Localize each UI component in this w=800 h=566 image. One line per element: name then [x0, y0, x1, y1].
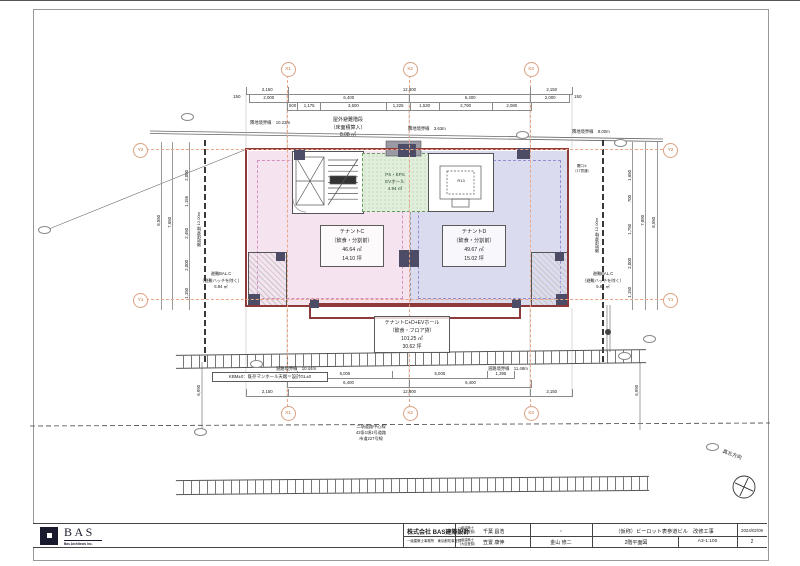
north-compass-icon	[733, 476, 755, 498]
dim-label: 8,550	[651, 217, 656, 228]
boundary-label-top-mid: 隣地境界線 3.63m	[408, 126, 446, 131]
dim-label: 2,150	[530, 87, 572, 94]
balcony-note-left: 避難BAL.C （避難ハッチを除く） 5.84 ㎡	[196, 271, 246, 291]
grid-line-x3	[530, 75, 531, 412]
sheet-number: 2	[737, 539, 767, 545]
grid-bubble-x3-top: X3	[524, 62, 539, 77]
grid-bubble-y1-left: Y1	[133, 293, 148, 308]
dim-line-left	[172, 142, 173, 310]
dim-label: 700	[627, 195, 632, 202]
road-centerline-l3: 市道227号線	[333, 436, 409, 442]
dim-label: 8,550	[156, 215, 161, 226]
architect-name-2: 笠置 康伸	[483, 539, 504, 546]
survey-marker	[618, 352, 631, 360]
dim-label: 500	[287, 103, 297, 110]
combined-use: （飲食・フロア貸）	[375, 327, 449, 335]
combined-tenant-label-box: テナントC+D+EVホール （飲食・フロア貸） 101.25 ㎡ 30.62 坪	[374, 316, 450, 353]
dim-label: 1,225	[386, 103, 410, 110]
tenant-c-name: テナントC	[321, 228, 383, 237]
boundary-label-top-right: 隣地境界線 8.00m	[572, 129, 610, 134]
grid-line-x1	[287, 75, 288, 412]
outdoor-stair-l3: 8.08 ㎡	[312, 132, 384, 140]
survey-marker	[38, 226, 51, 234]
dim-label: 1,395	[487, 371, 514, 378]
elevator-label: R13	[452, 178, 470, 183]
dim-row-bottom-1: 5,005 5,005 1,395	[297, 371, 515, 379]
tenant-d-area: 49.67 ㎡	[443, 246, 505, 255]
grid-bubble-x2-top: X2	[403, 62, 418, 77]
dim-line-right	[657, 142, 658, 310]
dim-label: 1,175	[297, 103, 320, 110]
dim-label: 2,000	[184, 170, 189, 181]
tenant-c-tsubo: 14.10 坪	[321, 255, 383, 264]
dim-line-right	[632, 142, 633, 310]
column	[398, 144, 416, 157]
column	[276, 252, 285, 261]
boundary-label-road-left: 道路境界線 10.44m	[276, 366, 316, 371]
laundry-pole-tag	[643, 335, 656, 343]
grid-bubble-x2-bottom: X2	[403, 406, 418, 421]
dim-label: 1,150	[184, 288, 189, 299]
drawing-sheet: X1 X2 X3 X1 X2 X3 Y2 Y1 Y2 Y1 2,150 12,8…	[0, 0, 800, 566]
dim-label: 2,150	[246, 87, 288, 94]
drawing-date: 2024/02/09	[737, 528, 767, 533]
dim-label: 2,000	[184, 260, 189, 271]
dim-label-150-left: 150	[233, 94, 241, 100]
dim-label: 1,750	[627, 224, 632, 235]
dim-label: 2,450	[184, 228, 189, 239]
project-name: （仮称）ビーロット表参道ビル 改修工事	[594, 528, 735, 535]
boundary-label-top-left: 隣地境界線 10.23m	[250, 120, 290, 125]
survey-marker	[614, 139, 627, 147]
dim-label: 2,150	[530, 389, 572, 396]
drawing-scale: A3-1:100	[678, 539, 737, 544]
opening-note: 開口① （1T貫通）	[568, 164, 596, 174]
dim-label: 2,000	[249, 95, 288, 102]
dim-label-150-right: 150	[574, 94, 582, 100]
grid-bubble-y1-right: Y1	[663, 293, 678, 308]
survey-marker	[516, 131, 529, 139]
tenant-d-use: （飲食・分割前）	[443, 237, 505, 246]
survey-marker	[250, 360, 263, 368]
survey-marker	[181, 113, 194, 121]
drawing-title: 2階平面図	[594, 539, 678, 546]
checked-by: 金山 修二	[530, 539, 592, 546]
dim-label: 6,400	[409, 380, 531, 387]
opening-l2: （1T貫通）	[568, 169, 596, 174]
dim-label: 12,800	[288, 87, 531, 94]
grid-bubble-x1-top: X1	[281, 62, 296, 77]
grid-bubble-y2-right: Y2	[663, 143, 678, 158]
dim-label: 6,990	[196, 385, 201, 396]
outdoor-stair-l2: （床面積算入）	[312, 125, 384, 133]
firm-registration: 一級建築士事務所 東京都知事登録	[407, 538, 461, 543]
dim-label: 2,000	[530, 95, 569, 102]
tenant-d-name: テナントD	[443, 228, 505, 237]
tenant-d-label-box: テナントD （飲食・分割前） 49.67 ㎡ 15.02 坪	[442, 225, 506, 267]
dim-line-left	[161, 142, 162, 310]
dim-row-top-3: 500 1,175 3,500 1,225 1,530 2,790 2,080	[287, 103, 532, 111]
dim-label: 1,155	[184, 196, 189, 207]
ps-hall-l1: PS・EPS	[365, 171, 425, 178]
dim-label: 7,650	[167, 217, 172, 228]
ps-hall-l3: 4.94 ㎡	[365, 185, 425, 192]
dim-label: 12,800	[288, 389, 531, 396]
dim-label: 6,400	[409, 95, 530, 102]
combined-tsubo: 30.62 坪	[375, 343, 449, 351]
column	[294, 149, 305, 160]
tenant-c-area: 46.64 ㎡	[321, 246, 383, 255]
dim-row-top-1: 2,150 12,800 2,150	[246, 87, 573, 95]
dim-row-bottom-3: 2,150 12,800 2,150	[246, 389, 573, 397]
bas-logo-text: BAS	[64, 525, 95, 540]
dim-label: 1,650	[627, 170, 632, 181]
dim-label: 2,150	[246, 389, 288, 396]
dim-label: 3,500	[320, 103, 386, 110]
dim-line-left	[189, 142, 190, 310]
grid-line-y1	[146, 299, 663, 300]
tenant-c-use: （飲食・分割前）	[321, 237, 383, 246]
road-centerline-note: 二項道路中心線 42条1項1号道路 市道227号線	[333, 424, 409, 442]
boundary-label-side-left: 隣地境界線 12.00m	[196, 212, 202, 246]
grid-bubble-x3-bottom: X3	[524, 406, 539, 421]
dim-label: 6,400	[288, 95, 409, 102]
outdoor-stair-l1: 屋外避難階段	[312, 117, 384, 125]
dim-label: 2,080	[492, 103, 532, 110]
architect-role-1: 一級建築士 （大臣登録）	[458, 526, 477, 534]
boundary-label-road-right: 道路境界線 11.48m	[488, 366, 528, 371]
tenant-d-tsubo: 15.02 坪	[443, 255, 505, 264]
column	[555, 252, 564, 261]
dim-label: 7,890	[640, 215, 645, 226]
column	[512, 299, 521, 308]
combined-name: テナントC+D+EVホール	[375, 319, 449, 327]
middle-cell-dot: ・	[530, 528, 592, 535]
role-registration: （大臣登録）	[458, 542, 477, 546]
dim-label: 6,990	[634, 385, 639, 396]
dim-label: 5,005	[392, 371, 487, 378]
balcony-note-right: 避難BAL.C （避難ハッチを除く） 5.84 ㎡	[578, 271, 628, 291]
title-block: BAS Bas Architects Inc. 株式会社 BAS建築設計 一級建…	[33, 523, 767, 548]
balcony-left-l3: 5.84 ㎡	[196, 284, 246, 291]
dim-line-right	[645, 142, 646, 310]
grid-bubble-x1-bottom: X1	[281, 406, 296, 421]
dim-label: 2,790	[439, 103, 492, 110]
architect-role-2: 一級建築士 （大臣登録）	[458, 538, 477, 546]
combined-area: 101.25 ㎡	[375, 335, 449, 343]
grid-line-y2	[146, 149, 663, 150]
bas-logo-inner	[47, 533, 52, 538]
architect-name-1: 千葉 昌浩	[483, 528, 504, 535]
ps-hall-label: PS・EPS EVホール 4.94 ㎡	[365, 171, 425, 192]
bas-logo-sub: Bas Architects Inc.	[64, 542, 93, 546]
boundary-label-side-right: 隣地境界線 12.00m	[594, 218, 600, 252]
survey-marker	[194, 428, 207, 436]
tenant-c-label-box: テナントC （飲食・分割前） 46.64 ㎡ 14.10 坪	[320, 225, 384, 267]
sheet-top-edge	[0, 0, 800, 1]
grid-bubble-y2-left: Y2	[133, 143, 148, 158]
outdoor-stair-note: 屋外避難階段 （床面積算入） 8.08 ㎡	[312, 117, 384, 140]
dim-label: 1,530	[410, 103, 439, 110]
dim-label: 2,000	[627, 258, 632, 269]
column	[310, 299, 319, 308]
balcony-right-l3: 5.84 ㎡	[578, 284, 628, 291]
survey-marker	[706, 443, 719, 451]
dim-row-top-2: 2,000 6,400 6,400 2,000	[249, 95, 570, 103]
ps-hall-l2: EVホール	[365, 178, 425, 185]
role-registration: （大臣登録）	[458, 530, 477, 534]
kbm-note-box: KBM±0：既存マンホール天端＝設計GL±0	[212, 372, 328, 382]
